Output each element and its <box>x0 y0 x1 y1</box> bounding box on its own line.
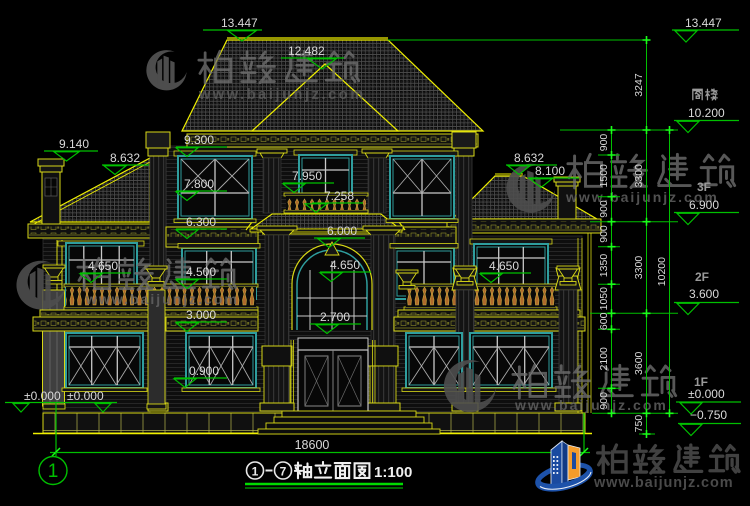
svg-text:4.650: 4.650 <box>88 259 118 273</box>
svg-text:4.500: 4.500 <box>186 265 216 279</box>
svg-text:7: 7 <box>280 465 287 479</box>
svg-text:−0.750: −0.750 <box>690 408 727 422</box>
svg-text:13.447: 13.447 <box>685 16 722 30</box>
svg-text:8.100: 8.100 <box>535 164 565 178</box>
svg-text:10200: 10200 <box>656 257 668 286</box>
svg-text:900: 900 <box>598 225 610 243</box>
svg-text:1:100: 1:100 <box>374 464 412 481</box>
svg-text:1: 1 <box>48 461 59 482</box>
svg-text:3.000: 3.000 <box>186 308 216 322</box>
svg-text:7.950: 7.950 <box>292 169 322 183</box>
svg-text:1500: 1500 <box>598 164 610 188</box>
svg-text:600: 600 <box>598 312 610 330</box>
svg-text:±0.000: ±0.000 <box>24 389 61 403</box>
svg-text:1350: 1350 <box>598 254 610 278</box>
svg-text:3300: 3300 <box>633 256 645 280</box>
svg-text:750: 750 <box>633 415 645 433</box>
svg-text:3F: 3F <box>697 180 711 194</box>
svg-text:13.447: 13.447 <box>221 16 258 30</box>
svg-text:8.632: 8.632 <box>110 151 140 165</box>
svg-text:10.200: 10.200 <box>688 106 725 120</box>
svg-text:900: 900 <box>598 200 610 218</box>
svg-text:www.baijunjz.com: www.baijunjz.com <box>198 87 366 103</box>
svg-text:6.300: 6.300 <box>186 215 216 229</box>
svg-text:6.000: 6.000 <box>327 224 357 238</box>
svg-text:2F: 2F <box>695 270 709 284</box>
svg-text:3247: 3247 <box>633 73 645 97</box>
svg-text:±0.000: ±0.000 <box>67 389 104 403</box>
svg-text:0.900: 0.900 <box>189 364 219 378</box>
svg-text:3300: 3300 <box>633 164 645 188</box>
svg-text:2.700: 2.700 <box>320 310 350 324</box>
svg-text:8.632: 8.632 <box>514 151 544 165</box>
svg-text:900: 900 <box>598 392 610 410</box>
svg-text:1: 1 <box>252 465 259 479</box>
svg-text:7.258: 7.258 <box>324 189 354 203</box>
svg-text:6.900: 6.900 <box>689 198 719 212</box>
svg-text:1050: 1050 <box>598 287 610 311</box>
svg-text:www.baijunjz.com: www.baijunjz.com <box>593 475 734 491</box>
svg-text:12.482: 12.482 <box>288 44 325 58</box>
svg-text:900: 900 <box>598 134 610 152</box>
svg-text:www.baijunjz.com: www.baijunjz.com <box>514 397 668 413</box>
svg-text:4.650: 4.650 <box>330 258 360 272</box>
svg-text:9.300: 9.300 <box>184 133 214 147</box>
svg-text:9.140: 9.140 <box>59 137 89 151</box>
svg-text:3600: 3600 <box>633 351 645 375</box>
svg-text:4.650: 4.650 <box>489 259 519 273</box>
svg-text:www.baijunjz.com: www.baijunjz.com <box>85 291 239 307</box>
svg-text:±0.000: ±0.000 <box>688 387 725 401</box>
svg-text:18600: 18600 <box>295 438 330 452</box>
svg-text:2100: 2100 <box>598 347 610 371</box>
svg-text:7.800: 7.800 <box>184 177 214 191</box>
svg-text:3.600: 3.600 <box>689 287 719 301</box>
svg-text:1F: 1F <box>694 375 708 389</box>
